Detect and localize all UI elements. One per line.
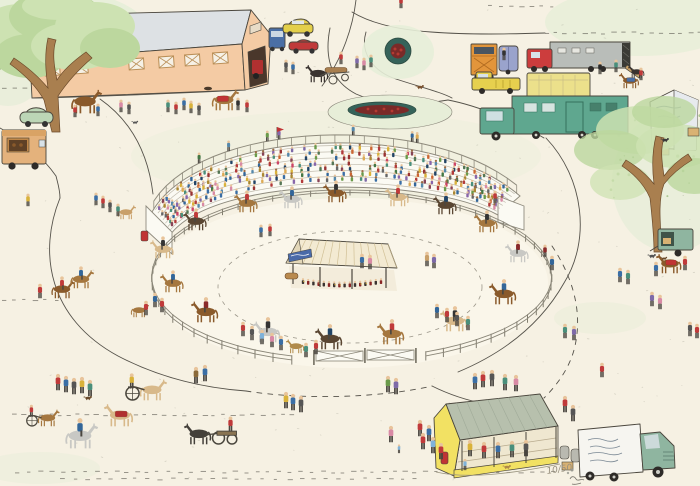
- barn-window: [213, 52, 229, 64]
- barn-window: [185, 54, 201, 66]
- horsebox-van: [2, 130, 46, 170]
- barrel: [560, 446, 569, 459]
- artwork-canvas: 10/50: [0, 0, 700, 486]
- sleeping-dog: [204, 87, 212, 91]
- tractor-in-barn: [252, 60, 263, 74]
- horse-show-illustration: 10/50: [0, 0, 700, 486]
- trailer-lavender: [499, 46, 518, 74]
- hay-bale: [663, 238, 671, 244]
- red-barrel: [141, 231, 148, 241]
- hay-rack: [688, 128, 699, 136]
- flower-bed-circle: [362, 25, 434, 79]
- blue-car: [269, 28, 285, 51]
- log-barrel: [285, 273, 298, 279]
- pony-head: [12, 143, 16, 147]
- barn-window: [159, 56, 175, 68]
- pony-head: [19, 143, 23, 147]
- flower-bed-island: [328, 95, 452, 129]
- delivery-van: [567, 424, 675, 482]
